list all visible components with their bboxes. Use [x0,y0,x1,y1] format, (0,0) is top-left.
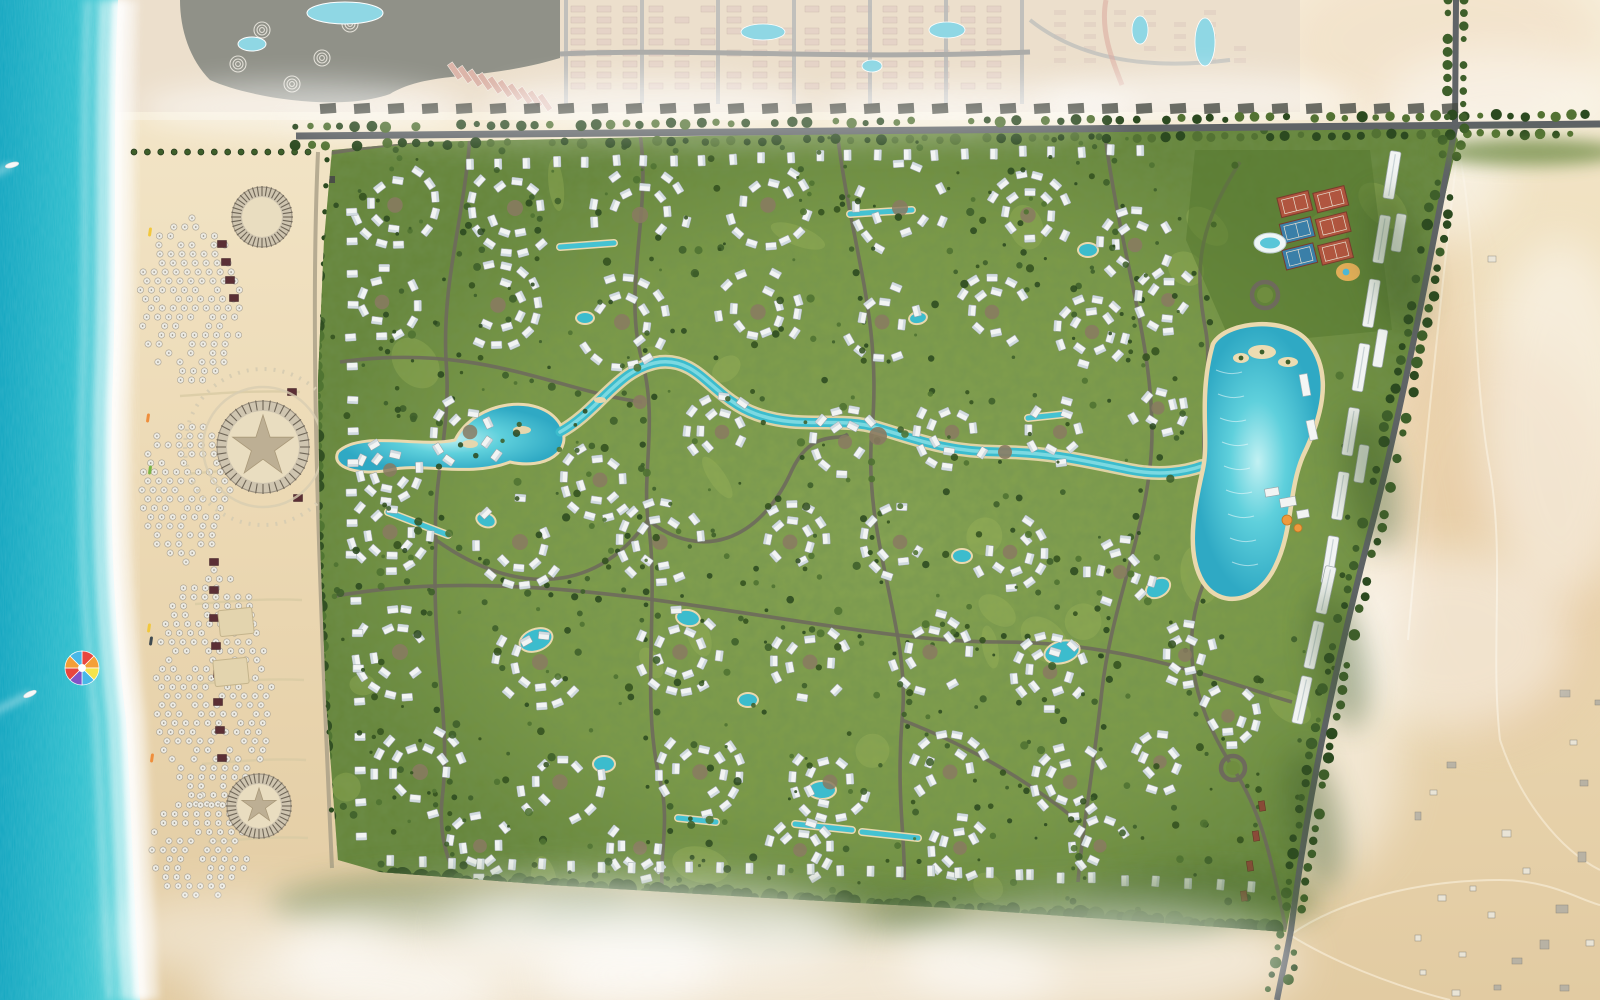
plaza [998,445,1012,459]
desert-building [1560,985,1569,991]
beach-cabana [210,559,219,566]
plaza [633,395,647,409]
desert-building [1560,690,1570,697]
clubhouse [1296,509,1309,519]
palm-tree [198,149,204,155]
beach-cabana [210,615,219,622]
master-plan-map [0,0,1600,1000]
beach-pavilion [226,773,292,839]
palm-tree [185,149,191,155]
desert-building [1512,958,1522,964]
palm-tree [158,149,164,155]
gatehouse [1252,831,1259,842]
desert-building [1580,780,1588,786]
beach-cabana [214,699,223,706]
beach-sports-court [218,607,255,636]
palm-tree [305,149,311,155]
beach-cabana [226,277,235,284]
beach-cabana [212,643,221,650]
desert-building [1459,952,1466,957]
club-pool [1260,238,1280,249]
desert-building [1494,985,1501,990]
beach-cabana [230,295,239,302]
desert-building [1415,812,1421,820]
palm-tree [238,149,244,155]
clubhouse-dome [1282,515,1292,525]
beach-cabana [210,587,219,594]
desert-building [1540,940,1549,949]
parasail [65,651,99,685]
beach-pavilion [231,186,293,248]
plaza [869,427,887,445]
palm-tree [144,149,150,155]
beach-cabana [216,727,225,734]
desert-building [1488,256,1496,262]
palm-tree [171,149,177,155]
sea [0,0,148,1000]
palm-tree [131,149,137,155]
desert-building [1415,935,1421,941]
aerial-render [0,0,1600,1000]
pond [577,313,593,323]
gatehouse [1246,861,1253,872]
palm-tree [211,149,217,155]
desert-building [1586,940,1594,946]
desert-building [1502,830,1511,837]
pond [953,550,971,562]
gatehouse [1258,801,1265,812]
palm-tree [225,149,231,155]
desert-building [1595,700,1600,705]
clubhouse-dome [1294,524,1302,532]
desert-building [1470,886,1476,891]
beach-cabana [218,241,227,248]
beach-sports-court [213,657,250,686]
palm-tree [278,149,284,155]
desert-building [1420,970,1426,975]
desert-building [1438,895,1446,901]
palm-tree [251,149,257,155]
beach-cabana [218,755,227,762]
desert-building [1578,852,1586,862]
beach-cabana [222,259,231,266]
desert-building [1430,790,1437,795]
pond [1079,244,1097,256]
palm-tree [265,149,271,155]
desert-building [1447,762,1456,768]
desert-building [1556,905,1568,913]
desert-building [1488,912,1495,918]
desert-building [1570,740,1577,745]
desert-building [1523,868,1530,874]
desert-building [1452,990,1460,996]
